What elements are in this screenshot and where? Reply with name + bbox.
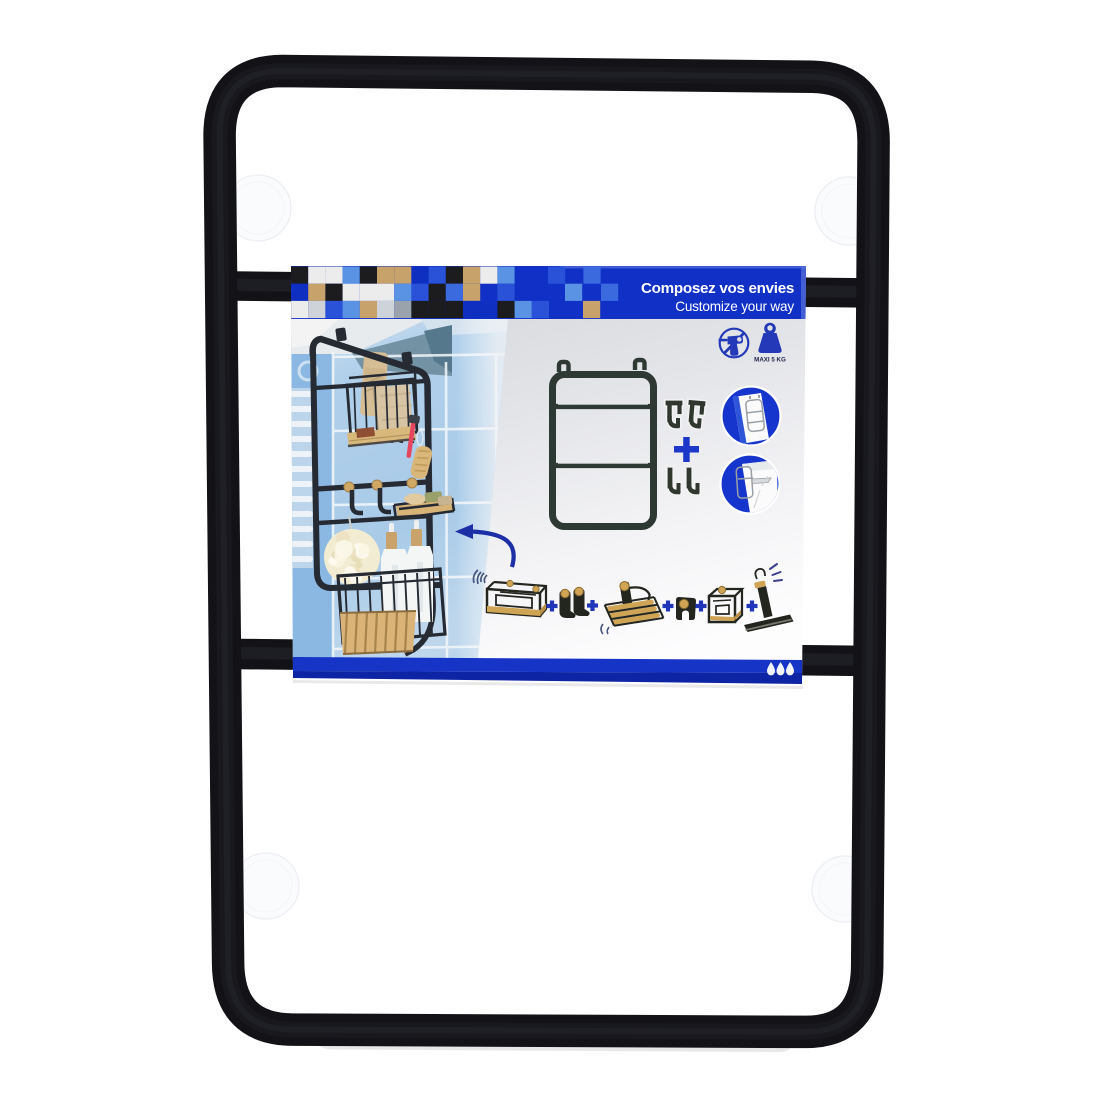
svg-text:MAXI 5 KG: MAXI 5 KG — [754, 357, 786, 364]
svg-text:Customize your way: Customize your way — [675, 299, 794, 314]
svg-text:Composez vos envies: Composez vos envies — [641, 280, 794, 297]
